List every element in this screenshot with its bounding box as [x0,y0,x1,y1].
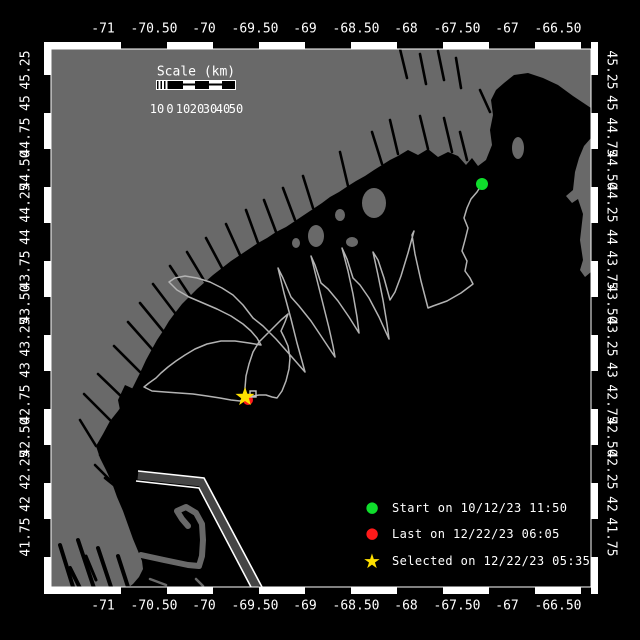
tick-label: 41.75 [20,517,33,556]
tick-label: 45 [20,95,33,111]
tick-label: -68 [394,23,417,36]
start-marker-icon: ● [360,500,384,515]
scale-segment [208,81,222,89]
tick-label: -68.50 [333,23,380,36]
legend-item-last: ● Last on 12/22/23 06:05 [360,526,560,541]
scale-segment [223,81,235,89]
tick-label: -69 [293,600,316,613]
tick-label: -70 [192,23,215,36]
tick-label: 10 [150,103,164,115]
tick-label: -67 [495,23,518,36]
tick-label: -66.50 [535,600,582,613]
scale-bar [156,80,236,90]
tick-label: 42 [20,496,33,512]
tick-label: -68 [394,600,417,613]
tick-label: 43.25 [605,317,618,356]
tick-label: 45.25 [605,50,618,89]
tick-label: -67.50 [434,23,481,36]
legend-label-start: Start on 10/12/23 11:50 [392,501,567,515]
tick-label: -69.50 [232,23,279,36]
scale-segment-hatched [157,81,169,89]
tick-label: 10 [176,103,190,115]
map-canvas [0,0,640,640]
tick-label: 44.25 [20,183,33,222]
tick-label: -70 [192,600,215,613]
drifter-track-map: -71-70.50-70-69.50-69-68.50-68-67.50-67-… [0,0,640,640]
tick-label: -71 [91,600,114,613]
tick-label: 42.25 [605,450,618,489]
tick-label: 43 [20,362,33,378]
tick-label: 45.25 [20,50,33,89]
tick-label: -70.50 [131,600,178,613]
selected-marker-icon: ★ [360,551,384,571]
tick-label: 43 [605,362,618,378]
tick-label: -71 [91,23,114,36]
tick-label: 44 [605,229,618,245]
legend-item-selected: ★ Selected on 12/22/23 05:35 [360,551,590,571]
scale-segment [182,81,196,89]
scale-bar-title: Scale (km) [157,65,235,80]
tick-label: 50 [229,103,243,115]
tick-label: 42.25 [20,450,33,489]
start-position-marker [476,178,488,190]
tick-label: -67.50 [434,600,481,613]
scale-segment [196,81,208,89]
tick-label: -66.50 [535,23,582,36]
tick-label: -67 [495,600,518,613]
grand-manan-island [512,137,524,159]
legend-label-selected: Selected on 12/22/23 05:35 [392,554,590,568]
tick-label: -69 [293,23,316,36]
legend-label-last: Last on 12/22/23 06:05 [392,527,560,541]
tick-label: 41.75 [605,517,618,556]
tick-label: -68.50 [333,600,380,613]
tick-label: -70.50 [131,23,178,36]
last-marker-icon: ● [360,526,384,541]
tick-label: 0 [166,103,173,115]
legend-item-start: ● Start on 10/12/23 11:50 [360,500,567,515]
tick-label: -69.50 [232,600,279,613]
tick-label: 42 [605,496,618,512]
scale-segment [169,81,181,89]
tick-label: 43.25 [20,317,33,356]
tick-label: 44.25 [605,183,618,222]
tick-label: 45 [605,95,618,111]
tick-label: 44 [20,229,33,245]
